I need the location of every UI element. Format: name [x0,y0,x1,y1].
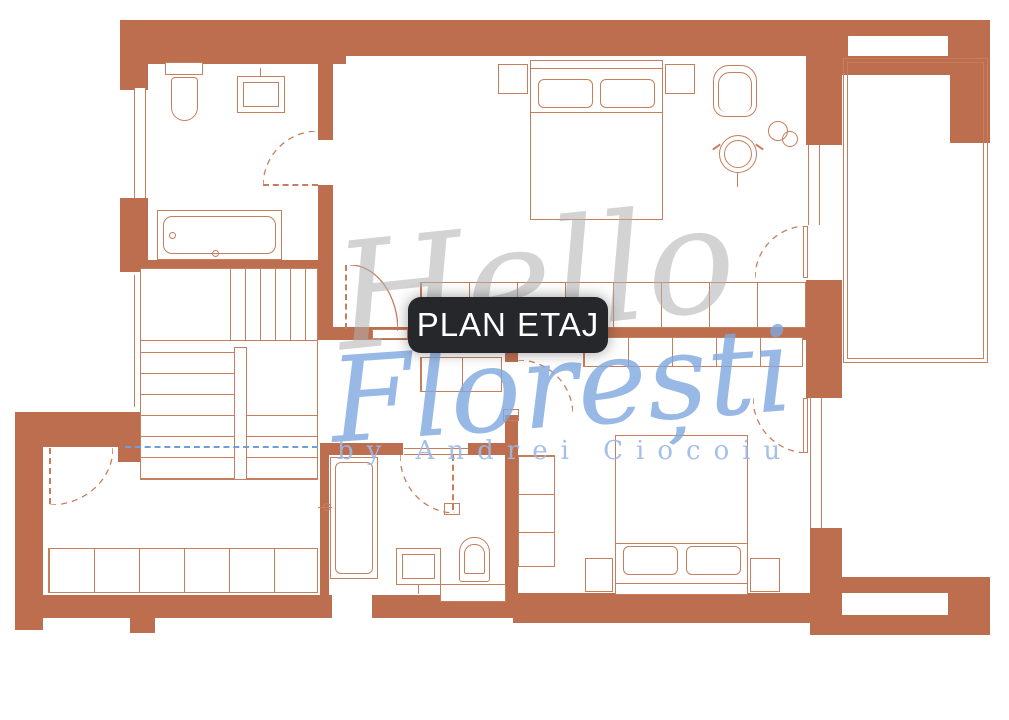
stair-landing-line [140,340,318,341]
plant-circle-small [782,131,798,147]
wall-top-band [120,20,846,56]
toilet2-seat [464,544,485,574]
door-leaf-leftroom [49,448,51,504]
round-table-stem [737,173,738,187]
nightstand1-left [498,64,528,94]
door-hinge-bedroom2 [503,409,519,421]
window-bedroom1-right [808,145,820,225]
door-leaf-balcony1 [803,226,808,278]
bed2-pillow-left [623,546,678,575]
wall-bedroom2-bottom [513,593,810,623]
stair-section-line [125,446,318,448]
door-track-bathroom2 [404,448,468,455]
door-arc-bathroom1 [263,131,318,186]
door-leaf-bathroom2 [452,455,454,510]
sink2-faucet [418,585,419,594]
toilet1-bowl [171,77,198,121]
window-bottom-right-slot [842,593,948,615]
bathtub-inner [163,216,276,254]
door-leaf-balcony2 [803,398,808,453]
stair-treads-right [247,415,318,481]
wall-bottom-left-stub [130,595,155,633]
door-leaf-bedroom1-entry [345,265,347,329]
wardrobe-leftroom [48,548,318,593]
bed1-sheet-line [530,112,663,113]
wall-hall-vertical-lower [318,185,333,340]
stair-treads-upper [230,268,318,341]
door-leaf-bathroom1 [263,184,318,186]
wall-bottom-left-band [43,595,332,618]
bed2-headboard [615,583,748,595]
bed1-headboard [530,60,663,69]
wall-bedroom2-west-lower [505,415,518,595]
stair-treads-left [140,352,234,480]
window-bathroom-left [134,88,146,198]
door-handle-bathroom2 [444,503,460,515]
wall-bottom-right-vertical [810,528,842,635]
bed1-pillow-right [600,79,655,108]
window-bedroom2-right [810,398,822,528]
window-top-right-slot [848,36,948,56]
wall-left-stub-mid [120,198,148,262]
wall-bathroom2-left [320,443,329,595]
floor-plan-canvas: Hello Florești by Andrei Ciocoiu PLAN ET… [0,0,1009,720]
door-arc-bedroom2-entry [518,360,573,415]
window-bottom-slot [332,595,372,611]
wall-left-stub-upper [120,52,148,90]
nightstand2-left [585,558,613,592]
balcony-inner-line [847,62,984,359]
bed1-pillow-left [538,79,593,108]
shower-inner [335,462,373,574]
toilet2-cistern-shelf [440,584,506,602]
toilet1-tank [165,62,203,75]
bathtub-faucet [212,250,219,257]
door-arc-balcony1 [755,226,807,278]
armchair-back [718,72,752,112]
door-arc-balcony2 [753,398,808,453]
bed2-sheet-line [615,543,748,544]
wardrobe-bedroom2 [583,337,803,367]
sink1-basin [243,82,279,107]
bathtub-drain [169,232,176,239]
hall-closet [420,357,502,392]
sink1-faucet [260,68,261,77]
wall-bathroom2-top-left [329,443,403,455]
plan-title-label: PLAN ETAJ [408,297,608,353]
door-arc-bedroom1-entry [350,265,398,331]
nightstand2-right [750,558,780,592]
stair-railing [234,347,247,480]
wall-leftroom-left [15,412,43,630]
door-arc-leftroom [50,448,113,505]
nightstand1-right [665,64,695,94]
sink2-basin [402,554,435,579]
bed2-pillow-right [686,546,741,575]
round-table-inner [724,140,752,168]
shower-valve-bar [318,507,332,508]
wall-bathroom2-top-right [468,443,505,455]
wall-hall-vertical-upper [318,56,333,140]
wall-balcony-divider-mid [806,280,842,398]
wall-balcony-divider-upper [806,50,842,145]
bedroom2-west-closet [518,455,555,567]
